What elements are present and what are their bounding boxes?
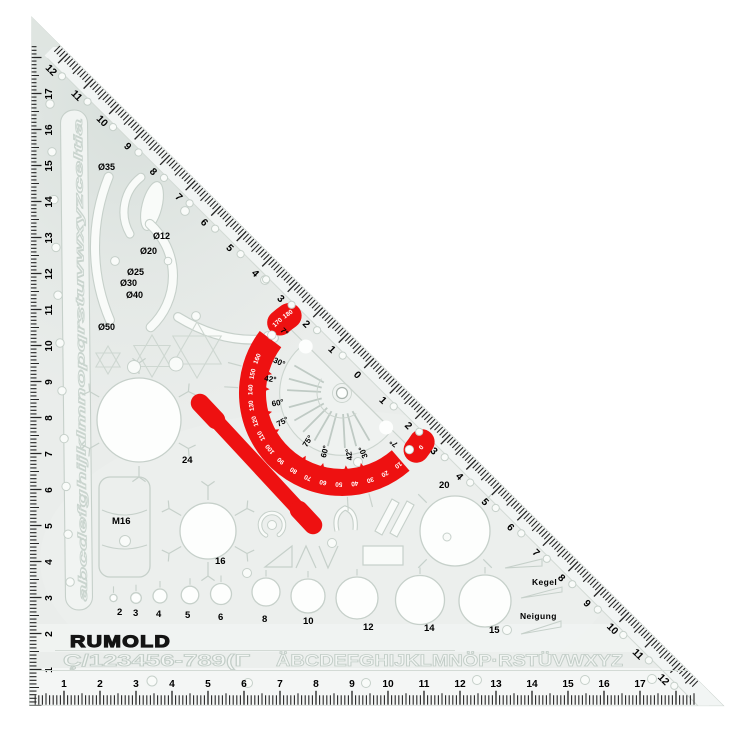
svg-text:8: 8 xyxy=(313,679,319,690)
svg-text:10: 10 xyxy=(382,679,394,690)
svg-text:3: 3 xyxy=(133,679,139,690)
svg-text:42°: 42° xyxy=(264,374,277,385)
svg-text:9: 9 xyxy=(44,379,55,385)
svg-text:5: 5 xyxy=(44,523,55,529)
svg-text:17: 17 xyxy=(44,88,55,100)
svg-text:7: 7 xyxy=(44,451,55,457)
svg-text:15: 15 xyxy=(562,679,574,690)
svg-text:14: 14 xyxy=(526,679,538,690)
svg-text:16: 16 xyxy=(598,679,610,690)
svg-text:24: 24 xyxy=(182,455,193,466)
svg-text:7: 7 xyxy=(277,679,283,690)
svg-text:1: 1 xyxy=(61,679,67,690)
svg-text:Kegel: Kegel xyxy=(532,577,557,587)
svg-text:14: 14 xyxy=(424,623,435,634)
svg-text:11: 11 xyxy=(44,304,55,315)
svg-text:5: 5 xyxy=(205,679,211,690)
svg-text:9: 9 xyxy=(349,679,355,690)
svg-text:12: 12 xyxy=(44,268,55,280)
svg-text:4: 4 xyxy=(156,609,162,620)
svg-text:8: 8 xyxy=(262,614,267,625)
svg-text:40: 40 xyxy=(350,479,358,487)
svg-text:10: 10 xyxy=(303,616,314,627)
svg-text:12: 12 xyxy=(363,622,374,633)
svg-text:16: 16 xyxy=(44,124,55,136)
svg-text:42°: 42° xyxy=(344,448,355,461)
svg-text:ÄBCDEFGHIJKLMNÖP·RSTÜVWXYZ: ÄBCDEFGHIJKLMNÖP·RSTÜVWXYZ xyxy=(276,651,623,670)
svg-text:140: 140 xyxy=(247,384,254,395)
svg-text:6: 6 xyxy=(44,487,55,493)
svg-text:Ç/123456-789(Γ: Ç/123456-789(Γ xyxy=(63,651,250,670)
svg-text:2: 2 xyxy=(97,679,103,690)
svg-text:4: 4 xyxy=(44,559,55,565)
svg-text:13: 13 xyxy=(490,679,502,690)
svg-text:13: 13 xyxy=(44,232,55,244)
svg-text:11: 11 xyxy=(419,679,430,690)
svg-text:15: 15 xyxy=(489,625,500,636)
svg-text:1: 1 xyxy=(44,667,55,673)
svg-text:15: 15 xyxy=(44,160,55,172)
svg-text:M16: M16 xyxy=(112,516,130,527)
svg-text:14: 14 xyxy=(44,196,55,208)
svg-text:Ø35: Ø35 xyxy=(98,162,115,172)
svg-text:6: 6 xyxy=(241,679,247,690)
svg-text:50: 50 xyxy=(335,480,343,487)
svg-text:Ø40: Ø40 xyxy=(126,290,143,300)
svg-text:2: 2 xyxy=(117,607,122,618)
svg-text:Ø20: Ø20 xyxy=(140,246,157,256)
svg-text:8: 8 xyxy=(44,415,55,421)
svg-text:4: 4 xyxy=(169,679,175,690)
svg-text:Ø50: Ø50 xyxy=(98,322,115,332)
svg-text:RUMOLD: RUMOLD xyxy=(70,633,171,651)
svg-text:5: 5 xyxy=(185,610,191,621)
svg-text:17: 17 xyxy=(634,679,646,690)
svg-text:16: 16 xyxy=(215,556,226,567)
svg-text:12: 12 xyxy=(454,679,466,690)
svg-text:20: 20 xyxy=(439,480,450,491)
svg-text:Neigung: Neigung xyxy=(520,611,557,621)
svg-text:3: 3 xyxy=(133,608,138,619)
svg-text:6: 6 xyxy=(218,612,223,623)
svg-text:Ø30: Ø30 xyxy=(120,278,137,288)
svg-text:3: 3 xyxy=(44,595,55,601)
svg-text:Ø25: Ø25 xyxy=(127,267,144,277)
svg-text:10: 10 xyxy=(44,340,55,352)
svg-text:2: 2 xyxy=(44,631,55,637)
svg-text:Ø12: Ø12 xyxy=(153,231,170,241)
